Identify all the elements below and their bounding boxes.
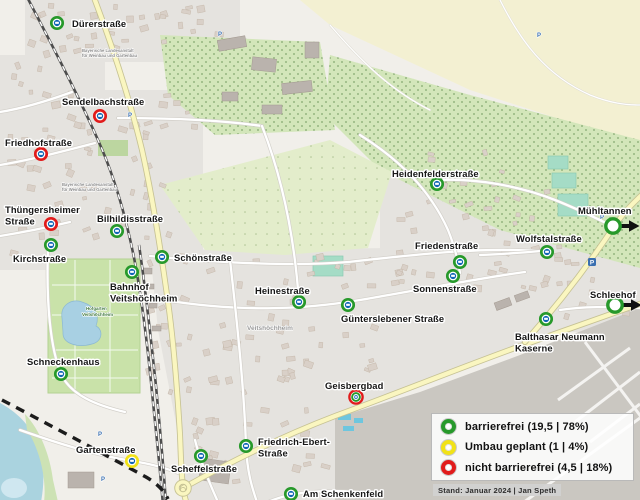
stop-marker-balthasar-neumann-kaserne	[540, 313, 551, 324]
legend-item-label: nicht barrierefrei (4,5 | 18%)	[465, 462, 612, 474]
stop-label-scheffelstrasse: Scheffelstraße	[171, 463, 237, 474]
stop-label-friedrich-ebert-strasse: Friedrich-Ebert-	[258, 436, 330, 447]
stop-marker-sendelbachstrasse	[94, 110, 105, 121]
stop-label-friedenstrasse: Friedenstraße	[415, 240, 478, 251]
stop-marker-scheffelstrasse	[195, 450, 206, 461]
stop-marker-bilhildisstrasse	[111, 225, 122, 236]
legend-item-barrierefrei: barrierefrei (19,5 | 78%)	[441, 417, 627, 437]
legend-item-label: Umbau geplant (1 | 4%)	[465, 441, 588, 453]
stop-label-friedhofstrasse: Friedhofstraße	[5, 137, 72, 148]
map-place-label: Hofgarten	[86, 306, 107, 311]
stop-marker-friedenstrasse	[454, 256, 465, 267]
stop-label-friedrich-ebert-strasse: Straße	[258, 447, 288, 458]
map-attribution: Stand: Januar 2024 | Jan Speth	[433, 484, 561, 496]
stop-marker-heidenfelderstrasse	[431, 178, 442, 189]
map-place-label: für Weinbau und Gartenbau	[82, 53, 138, 58]
map-place-label: Veitshöchheim	[247, 325, 293, 332]
stop-label-am-schenkenfeld: Am Schenkenfeld	[303, 488, 383, 499]
stop-marker-schneckenhaus	[55, 368, 66, 379]
legend: barrierefrei (19,5 | 78%) Umbau geplant …	[431, 413, 634, 481]
stop-label-thuengersheimer-strasse: Thüngersheimer	[5, 204, 80, 215]
stop-label-sendelbachstrasse: Sendelbachstraße	[62, 96, 144, 107]
svg-text:P: P	[590, 260, 595, 267]
legend-item-label: barrierefrei (19,5 | 78%)	[465, 421, 589, 433]
stop-label-bahnhof-veitshoechheim: Bahnhof	[110, 281, 149, 292]
parking-icon: P	[588, 258, 596, 267]
stop-label-kirchstrasse: Kirchstraße	[13, 253, 66, 264]
parking-letter: P	[101, 477, 105, 483]
stop-label-gartenstrasse: Gartenstraße	[76, 444, 136, 455]
nicht-barrierefrei-status-icon	[441, 460, 456, 475]
parking-letter: P	[537, 33, 541, 39]
stop-label-heinestrasse: Heinestraße	[255, 285, 310, 296]
stop-marker-heinestrasse	[293, 296, 304, 307]
parking-letter: P	[128, 113, 132, 119]
stop-label-schneckenhaus: Schneckenhaus	[27, 356, 100, 367]
stop-marker-wolfstalstrasse	[541, 246, 552, 257]
legend-item-nicht-barrierefrei: nicht barrierefrei (4,5 | 18%)	[441, 458, 627, 478]
stop-label-sonnenstrasse: Sonnenstraße	[413, 283, 477, 294]
stop-label-heidenfelderstrasse: Heidenfelderstraße	[392, 168, 479, 179]
stop-label-duererstrasse: Dürerstraße	[72, 18, 126, 29]
stop-label-schoenstrasse: Schönstraße	[174, 252, 232, 263]
stop-label-balthasar-neumann-kaserne: Kaserne	[515, 342, 553, 353]
stop-label-guenterslebener-strasse: Günterslebener Straße	[341, 313, 444, 324]
stop-marker-guenterslebener-strasse	[342, 299, 353, 310]
veitshoechheim-bus-stop-map: P Bayerische Landesanstaltfür Weinbau un…	[0, 0, 640, 500]
stop-label-bilhildisstrasse: Bilhildisstraße	[97, 213, 163, 224]
stop-marker-duererstrasse	[51, 17, 62, 28]
stop-marker-am-schenkenfeld	[285, 488, 296, 499]
parking-letter: P	[218, 32, 222, 38]
stop-label-thuengersheimer-strasse: Straße	[5, 215, 35, 226]
stop-label-balthasar-neumann-kaserne: Balthasar Neumann	[515, 331, 605, 342]
parking-letter: P	[98, 432, 102, 438]
stop-marker-schoenstrasse	[156, 251, 167, 262]
map-place-label: Veitshöchheim	[82, 312, 113, 317]
stop-marker-friedrich-ebert-strasse	[240, 440, 251, 451]
stop-marker-friedhofstrasse	[35, 148, 46, 159]
stop-marker-kirchstrasse	[45, 239, 56, 250]
stop-marker-bahnhof-veitshoechheim	[126, 266, 137, 277]
map-place-label: für Weinbau und Gartenbau	[62, 187, 118, 192]
stop-marker-geisbergbad	[349, 390, 362, 403]
legend-item-umbau-geplant: Umbau geplant (1 | 4%)	[441, 437, 627, 457]
stop-label-bahnhof-veitshoechheim: Veitshöchheim	[110, 292, 177, 303]
river-sandbank	[1, 478, 27, 498]
barrierefrei-status-icon	[441, 419, 456, 434]
stop-label-muehltannen: Mühltannen	[578, 205, 632, 216]
stop-marker-thuengersheimer-strasse	[45, 218, 56, 229]
stop-label-wolfstalstrasse: Wolfstalstraße	[516, 233, 582, 244]
stop-label-schleehof: Schleehof	[590, 289, 636, 300]
stop-marker-gartenstrasse	[126, 455, 137, 466]
stop-marker-sonnenstrasse	[447, 270, 458, 281]
stop-label-geisbergbad: Geisbergbad	[325, 380, 384, 391]
umbau-geplant-status-icon	[441, 440, 456, 455]
